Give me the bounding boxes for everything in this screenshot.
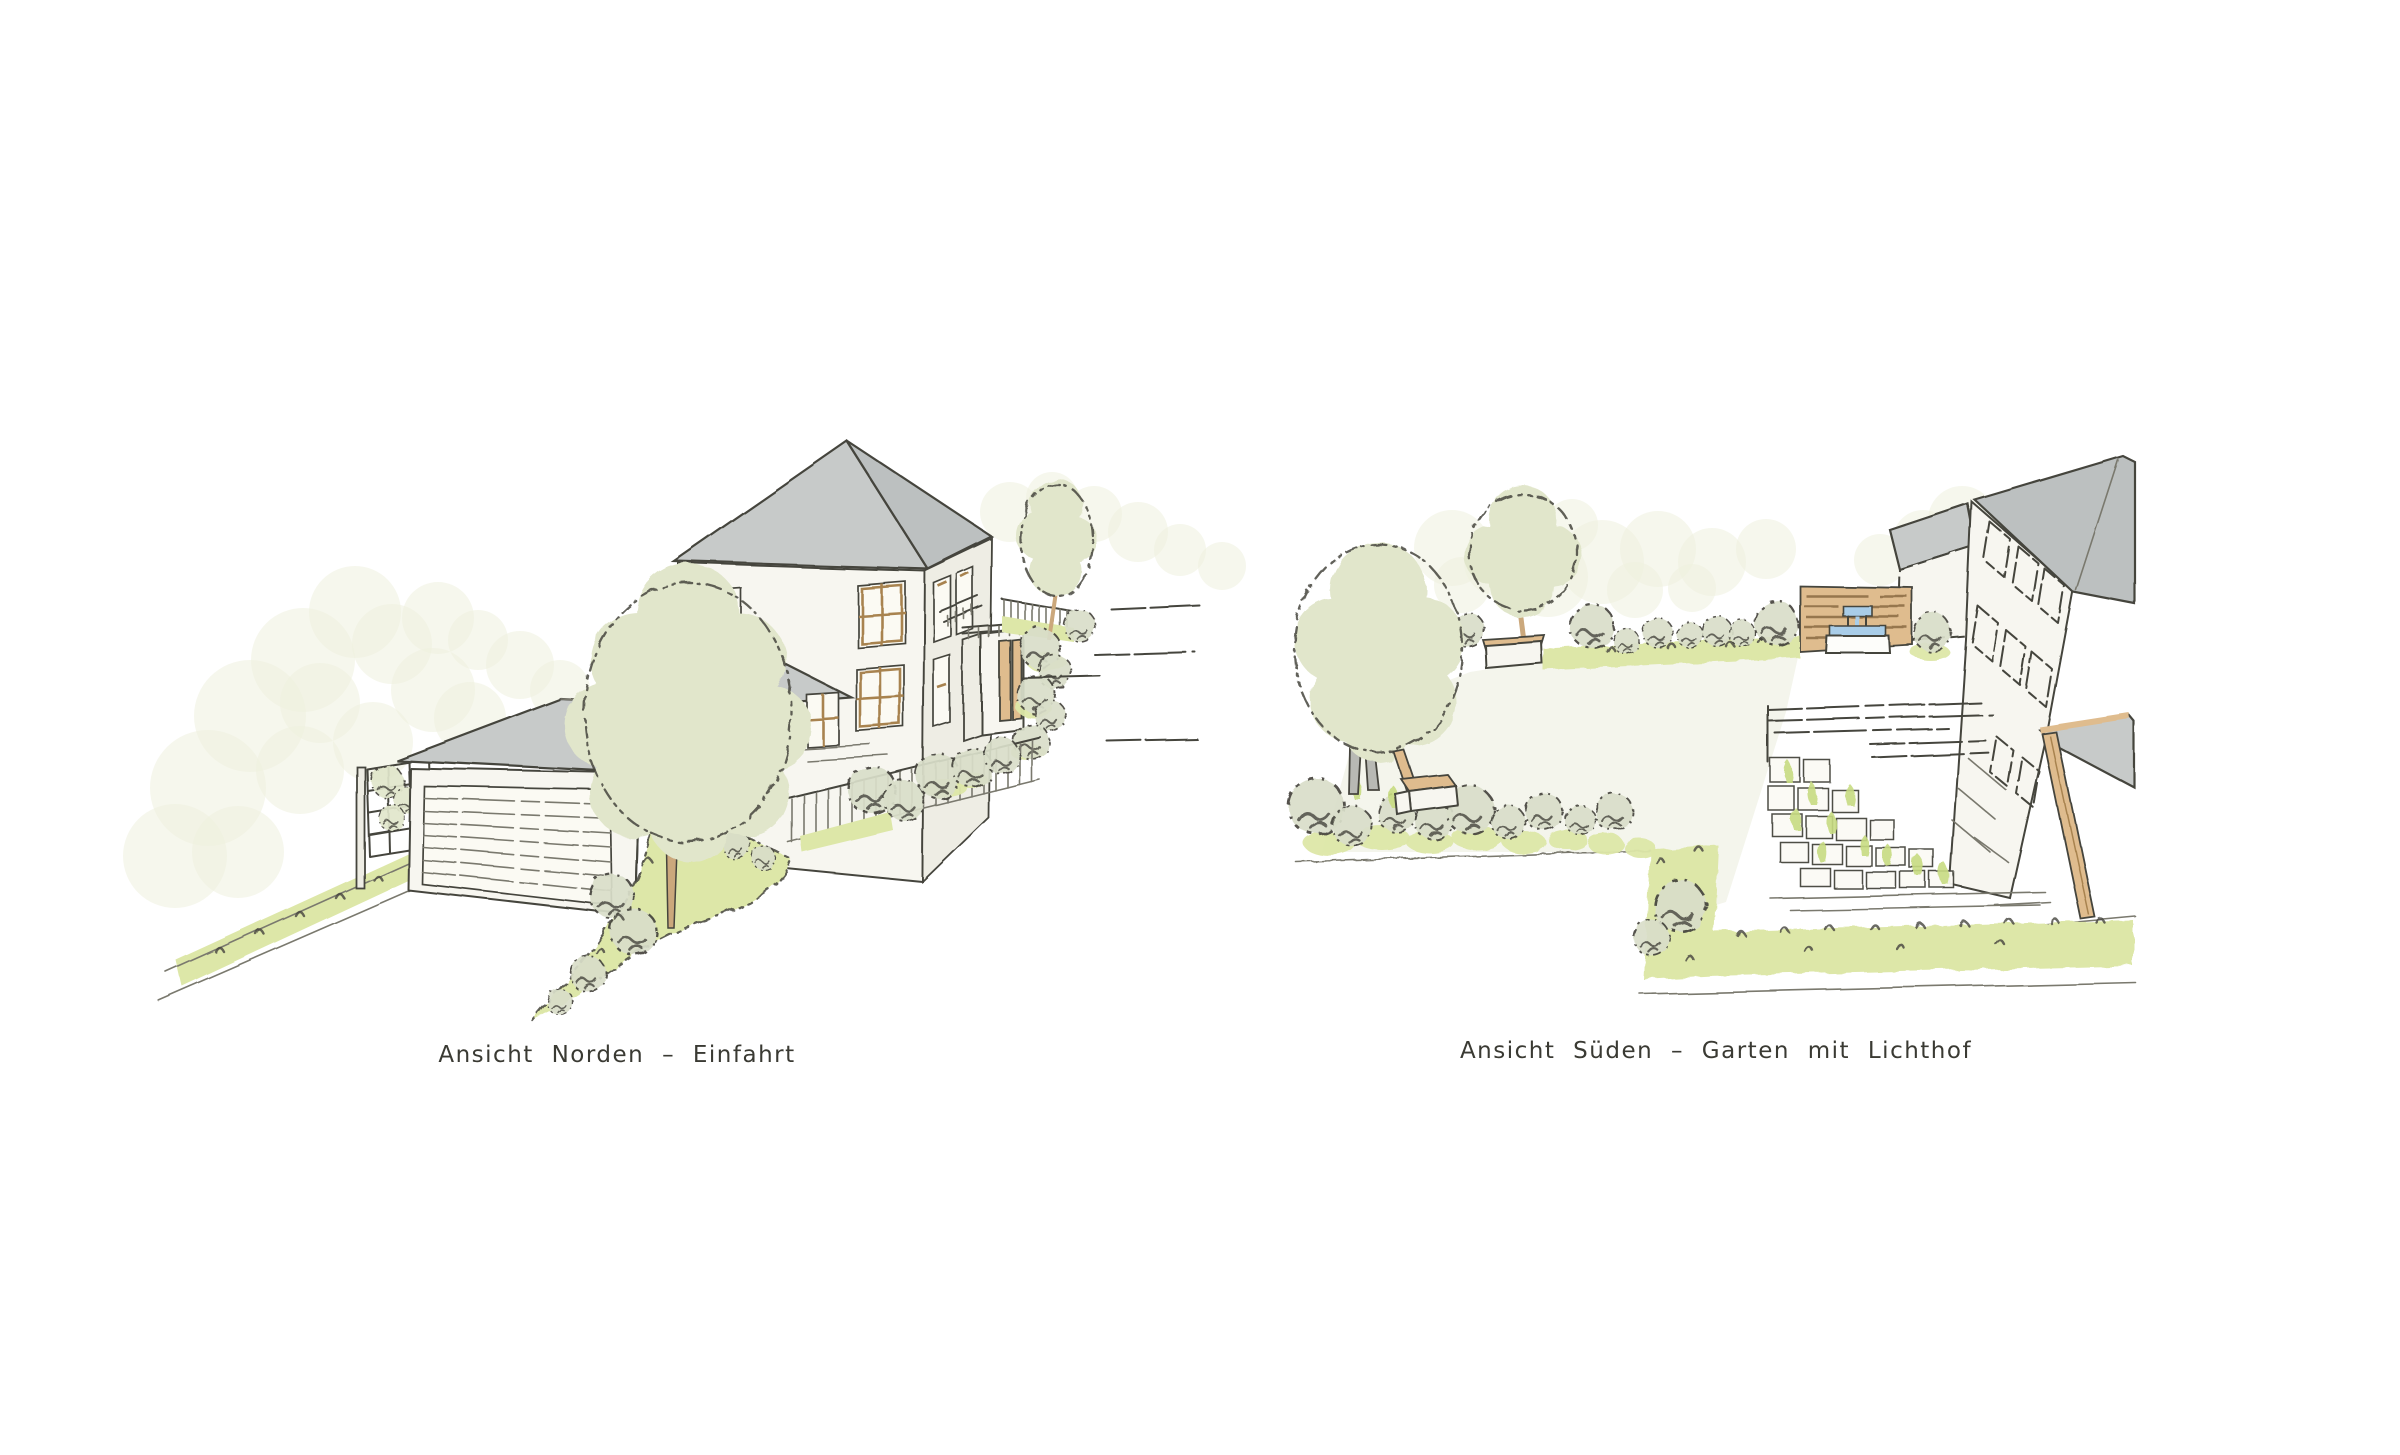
sketch-sheet: Ansicht Norden – Einfahrt Ansicht Süden …: [0, 0, 2400, 1455]
fountain-wall: [1800, 586, 1913, 653]
garage-door: [422, 786, 613, 906]
hedge-corner: [1634, 845, 1718, 980]
annex-door-panel: [999, 640, 1010, 720]
terrace-roof: [2040, 716, 2135, 918]
sketch-canvas: [0, 0, 2400, 1455]
north-sketch: [123, 441, 1246, 1020]
caption-north: Ansicht Norden – Einfahrt: [438, 1042, 795, 1068]
grass-strip: [1706, 918, 2133, 976]
caption-south: Ansicht Süden – Garten mit Lichthof: [1460, 1038, 1972, 1064]
south-sketch: [1288, 456, 2135, 994]
hedge-row: [1543, 601, 1800, 670]
ground-line-south: [1640, 982, 2135, 994]
planter-box: [1481, 634, 1543, 667]
window-lower-right: [856, 665, 904, 731]
window-upper-right: [857, 581, 905, 647]
